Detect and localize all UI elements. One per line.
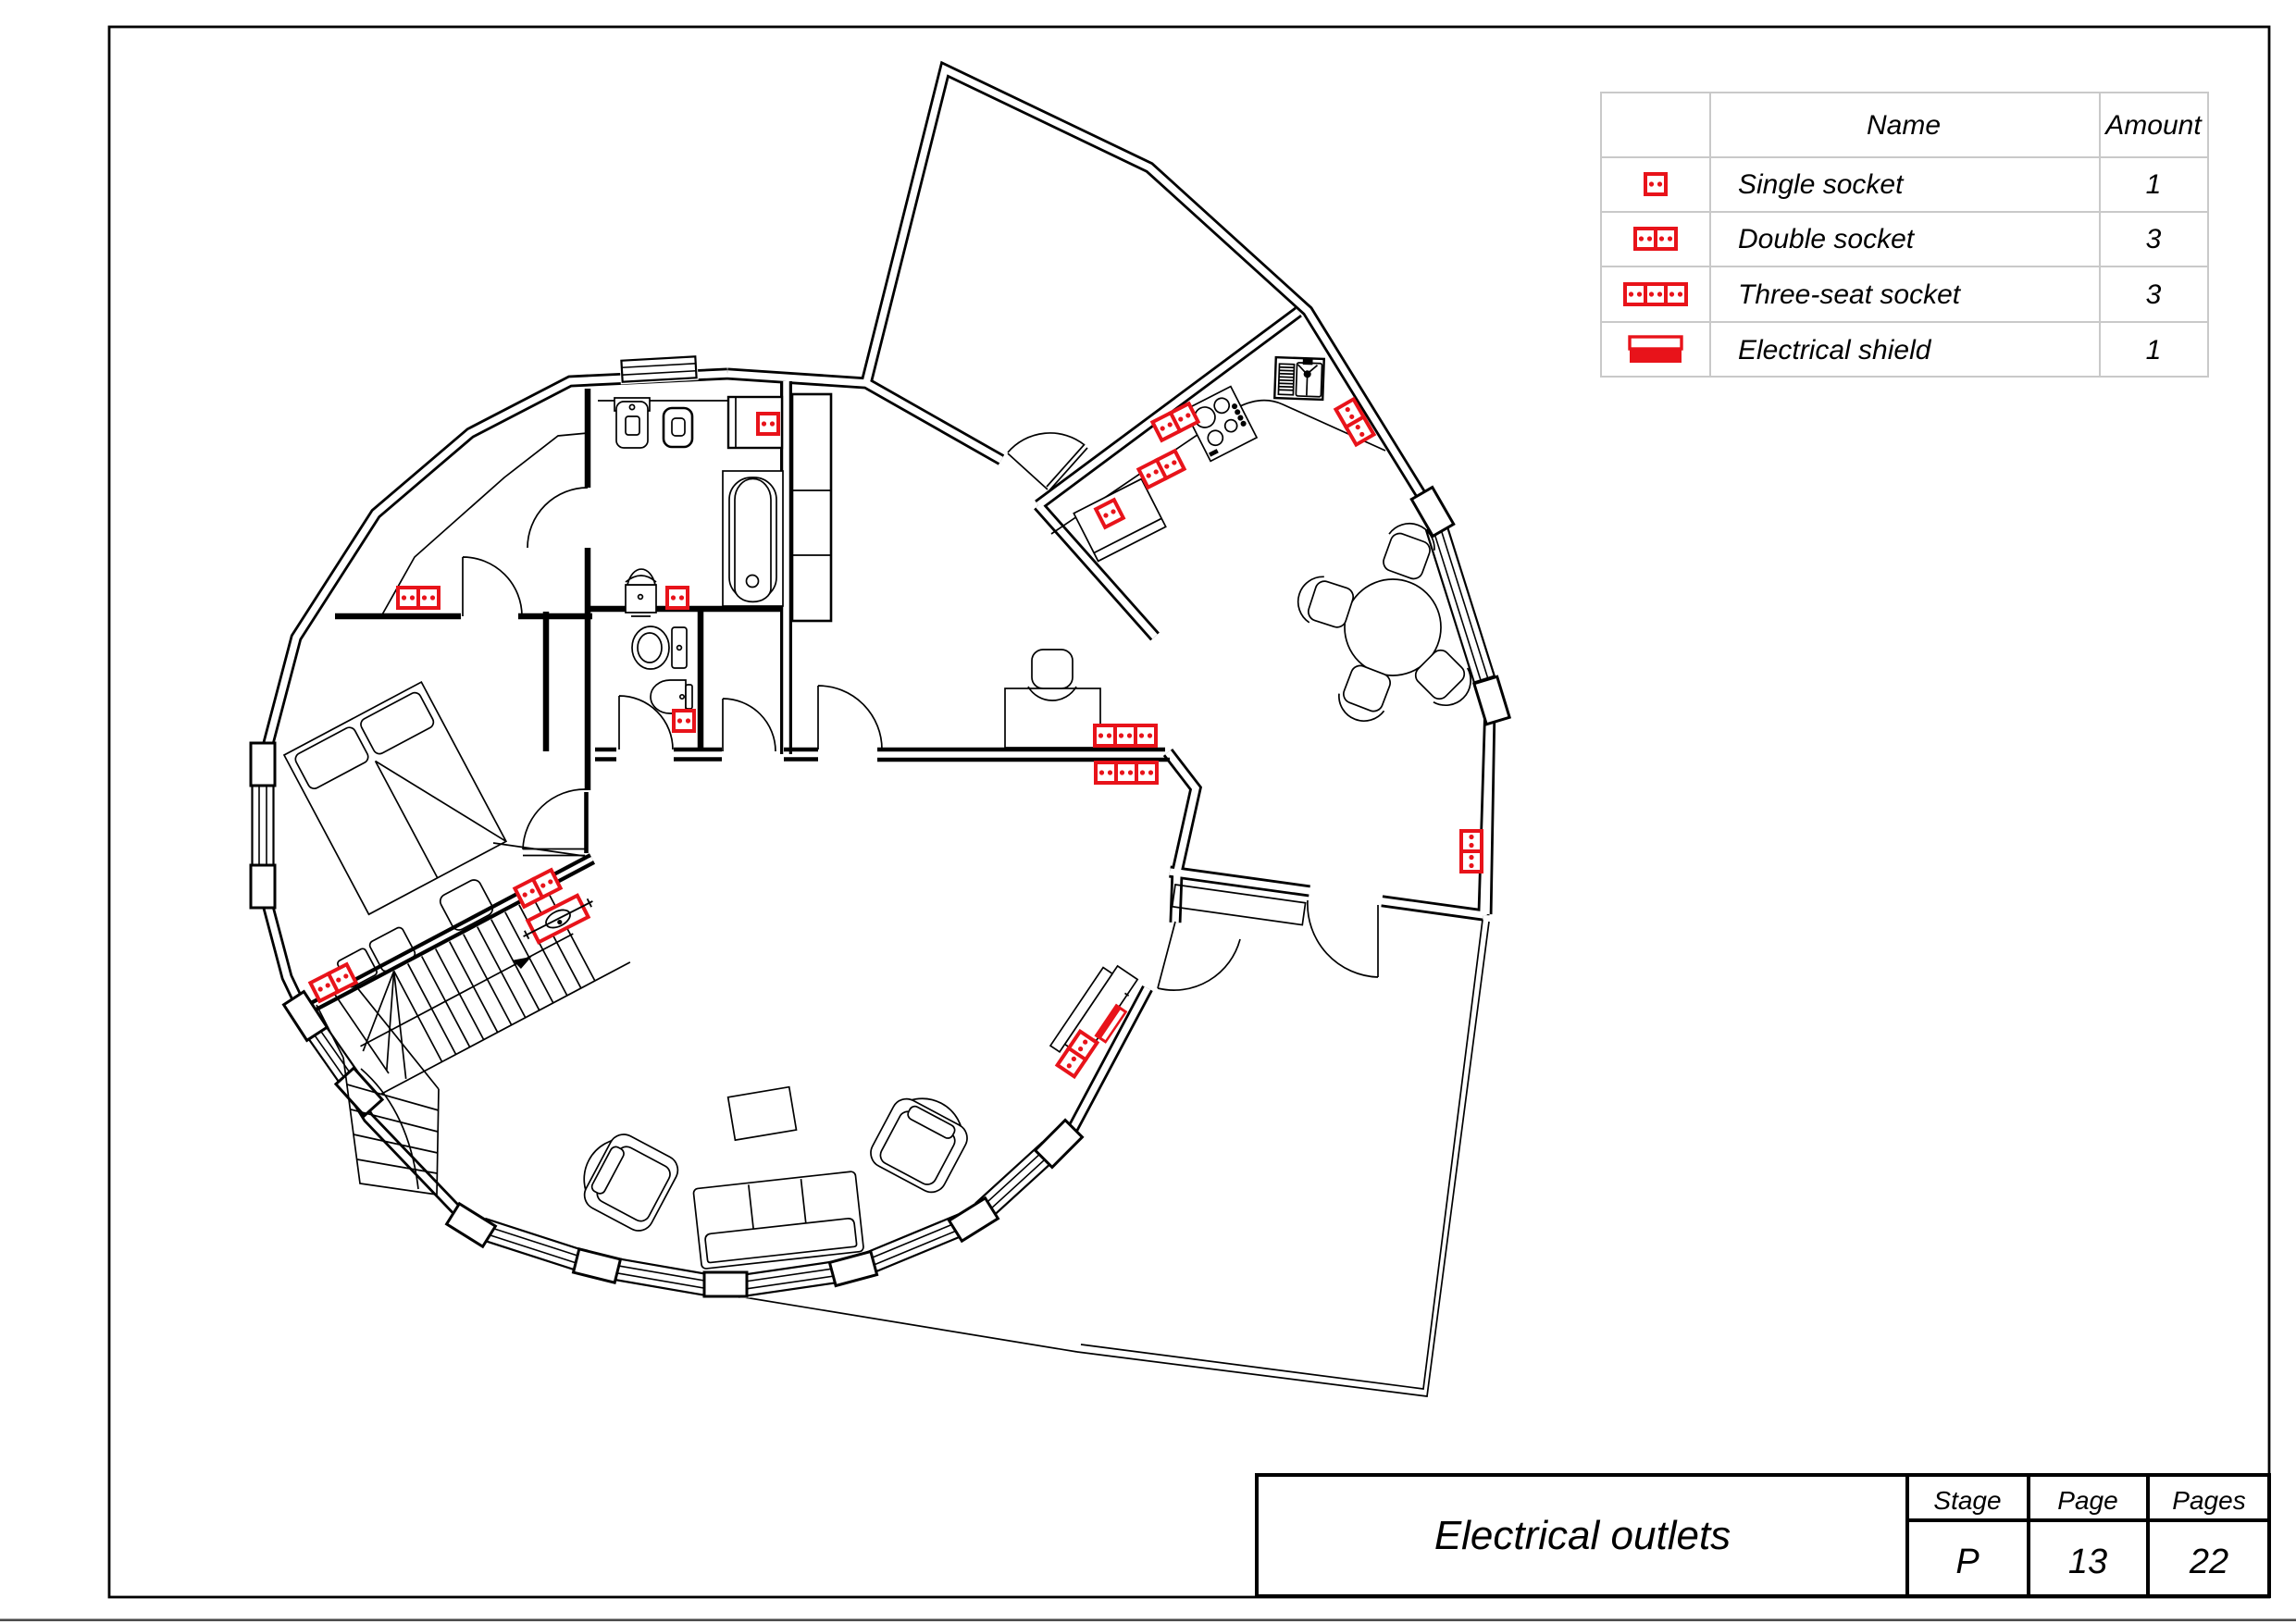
svg-text:22: 22 [2189, 1542, 2228, 1581]
svg-text:Double socket: Double socket [1738, 224, 1916, 254]
svg-text:Stage: Stage [1933, 1486, 2001, 1515]
svg-text:3: 3 [2146, 224, 2162, 254]
svg-text:3: 3 [2146, 279, 2162, 310]
svg-text:Amount: Amount [2104, 110, 2203, 141]
svg-text:1: 1 [2146, 335, 2162, 365]
svg-text:Three-seat socket: Three-seat socket [1738, 279, 1962, 310]
svg-text:Name: Name [1867, 110, 1941, 141]
svg-text:Electrical shield: Electrical shield [1738, 335, 1932, 365]
svg-text:P: P [1955, 1542, 1980, 1581]
svg-text:Pages: Pages [2172, 1486, 2245, 1515]
svg-text:Electrical outlets: Electrical outlets [1434, 1513, 1731, 1558]
svg-text:13: 13 [2068, 1542, 2107, 1581]
svg-text:Single socket: Single socket [1738, 169, 1905, 200]
svg-text:1: 1 [2146, 169, 2162, 200]
svg-text:Page: Page [2057, 1486, 2117, 1515]
